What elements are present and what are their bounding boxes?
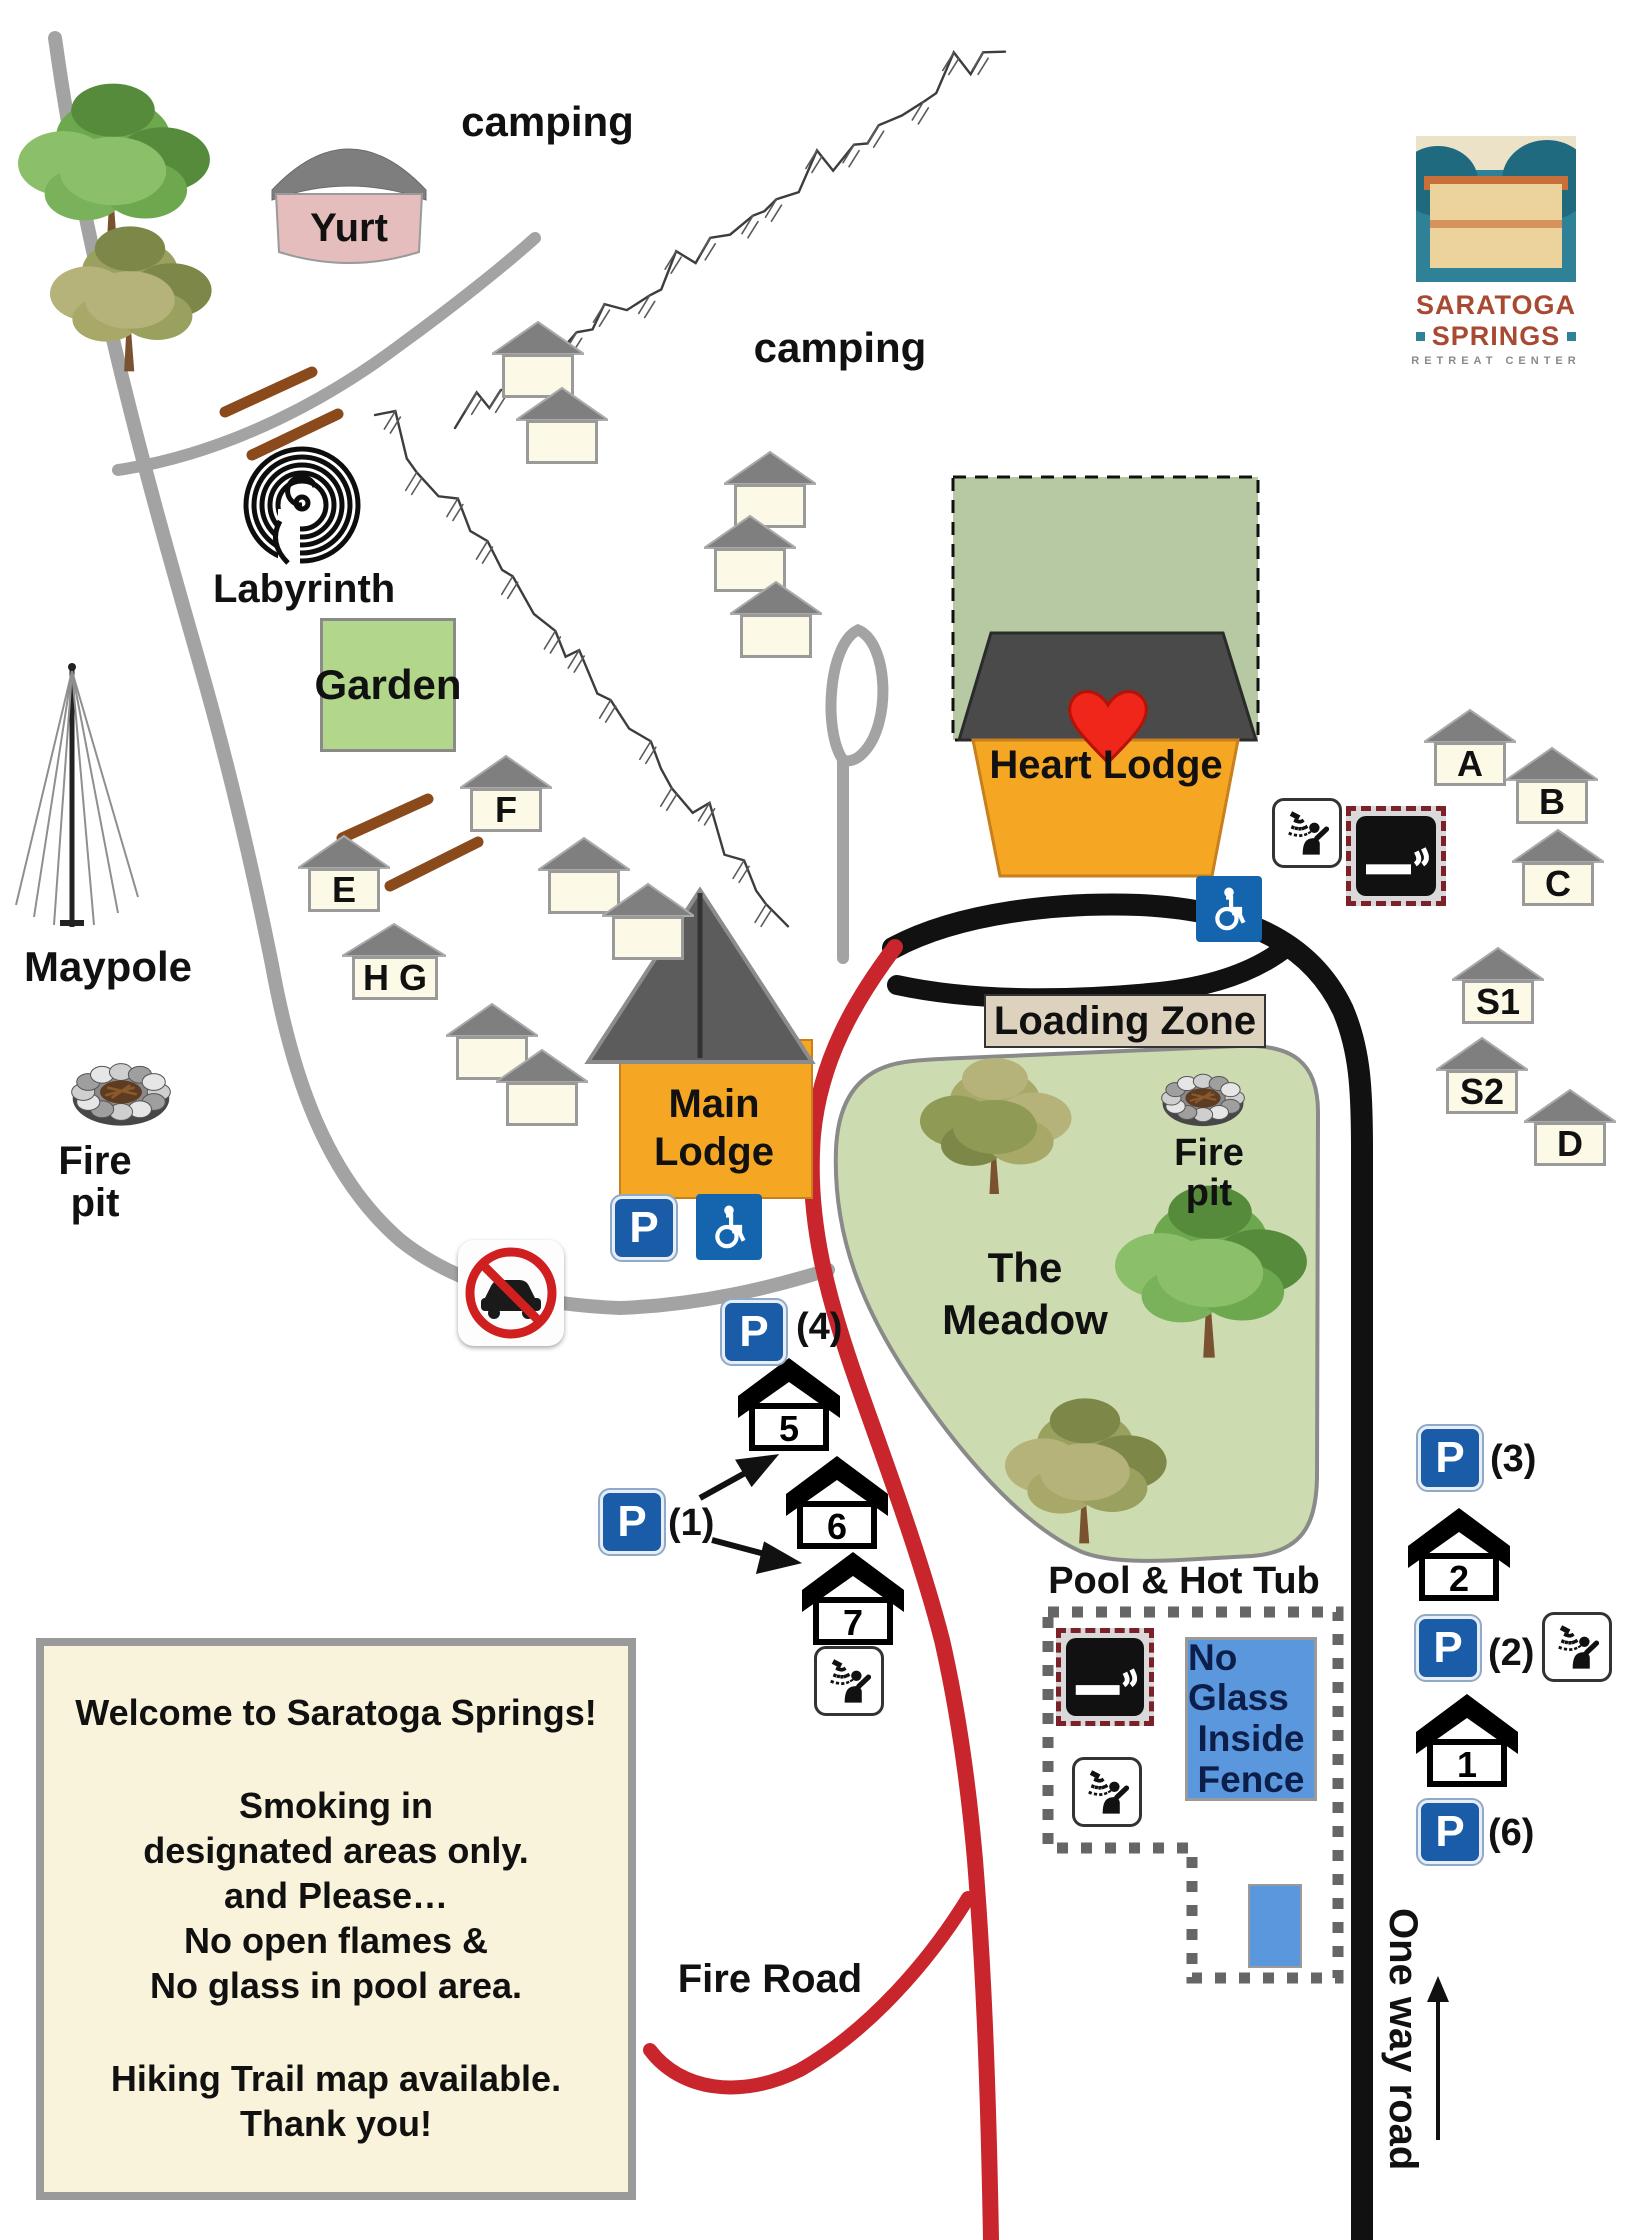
logo-line2: SPRINGS <box>1432 321 1561 352</box>
garden-label: Garden <box>314 661 461 709</box>
labyrinth-label: Labyrinth <box>213 568 393 610</box>
parking-letter: P <box>739 1307 768 1357</box>
logo-line1: SARATOGA <box>1408 290 1584 321</box>
main-lodge-line2: Lodge <box>624 1128 804 1176</box>
parking-icon: P <box>1416 1616 1480 1680</box>
fire-road-label: Fire Road <box>655 1958 885 2000</box>
parking-letter: P <box>1435 1807 1464 1857</box>
heart-lodge-label: Heart Lodge <box>980 744 1232 786</box>
parking-icon: P <box>1418 1426 1482 1490</box>
cabin-S2-label: S2 <box>1446 1070 1518 1114</box>
cabin-C-label: C <box>1522 862 1594 906</box>
yurt-label: Yurt <box>268 206 430 251</box>
garden-plot: Garden <box>320 618 456 752</box>
site-map: camping camping Yurt Labyrinth Garden <box>0 0 1648 2240</box>
no-glass-line1: No Glass <box>1188 1638 1314 1719</box>
cabin-D-label: D <box>1534 1122 1606 1166</box>
cabin-2: 2 <box>1406 1502 1512 1602</box>
meadow-label: The Meadow <box>925 1242 1125 1346</box>
welcome-line6: No glass in pool area. <box>44 1963 628 2008</box>
cabin-7-label: 7 <box>816 1604 890 1642</box>
parking-count-1: (1) <box>668 1502 714 1545</box>
cabin-E: E <box>298 832 390 914</box>
cabin-F-label: F <box>470 788 542 832</box>
welcome-line5: No open flames & <box>44 1918 628 1963</box>
parking-icon: P <box>612 1196 676 1260</box>
meadow-line2: Meadow <box>925 1294 1125 1346</box>
camping-label-upper: camping <box>455 100 640 144</box>
cabin-unlabeled <box>496 1046 588 1128</box>
smoking-area-icon <box>1056 1628 1154 1726</box>
shower-icon <box>814 1646 884 1716</box>
yurt-shape <box>268 128 430 280</box>
welcome-line7: Hiking Trail map available. <box>44 2056 628 2101</box>
cabin-unlabeled <box>516 384 608 466</box>
parking-count-4: (4) <box>796 1306 842 1349</box>
parking-icon: P <box>1418 1800 1482 1864</box>
pool-title: Pool & Hot Tub <box>1038 1562 1330 1602</box>
main-lodge-line1: Main <box>624 1080 804 1128</box>
one-way-arrow-icon <box>1427 1976 1449 2140</box>
logo-picture <box>1416 136 1576 282</box>
accessible-icon <box>1196 876 1262 942</box>
cabin-1-label: 1 <box>1430 1746 1504 1784</box>
cabin-6-label: 6 <box>800 1508 874 1546</box>
cabin-B-label: B <box>1516 780 1588 824</box>
yurt-building: Yurt <box>268 128 430 280</box>
cabin-7: 7 <box>800 1546 906 1646</box>
welcome-sign: Welcome to Saratoga Springs! Smoking in … <box>36 1638 636 2200</box>
cabin-5-label: 5 <box>752 1410 826 1448</box>
loading-zone-sign: Loading Zone <box>984 994 1266 1048</box>
shower-icon <box>1072 1757 1142 1827</box>
maypole-icon <box>10 655 195 940</box>
cabin-S1: S1 <box>1452 944 1544 1026</box>
maypole-label: Maypole <box>18 945 198 989</box>
labyrinth-icon <box>238 443 366 571</box>
cabin-F: F <box>460 752 552 834</box>
cabin-HG: H G <box>342 920 446 1002</box>
main-lodge-label: Main Lodge <box>624 1080 804 1176</box>
no-glass-line2: Inside <box>1198 1719 1305 1760</box>
fire-pit-west-label: Fire pit <box>30 1140 160 1224</box>
shower-icon <box>1272 798 1342 868</box>
cabin-1: 1 <box>1414 1688 1520 1788</box>
pool-no-glass-sign: No Glass Inside Fence <box>1185 1637 1317 1801</box>
no-glass-line3: Fence <box>1198 1760 1305 1801</box>
parking-count-3: (3) <box>1490 1438 1536 1481</box>
fire-pit-meadow-label: Fire pit <box>1149 1134 1269 1214</box>
meadow-line1: The <box>925 1242 1125 1294</box>
one-way-road-label: One way road <box>1382 1908 1424 2170</box>
logo-line3: RETREAT CENTER <box>1408 355 1584 367</box>
welcome-line2: Smoking in <box>44 1783 628 1828</box>
loading-zone-label: Loading Zone <box>994 999 1256 1044</box>
parking-letter: P <box>1433 1623 1462 1673</box>
welcome-line1: Welcome to Saratoga Springs! <box>44 1690 628 1735</box>
parking-icon: P <box>722 1300 786 1364</box>
cabin-C: C <box>1512 826 1604 908</box>
parking-count-2: (2) <box>1488 1632 1534 1675</box>
parking-icon: P <box>600 1490 664 1554</box>
saratoga-springs-logo: SARATOGA SPRINGS RETREAT CENTER <box>1408 136 1584 367</box>
no-cars-icon <box>458 1240 564 1346</box>
cabin-5: 5 <box>736 1352 842 1452</box>
parking-count-6: (6) <box>1488 1812 1534 1855</box>
parking-letter: P <box>617 1497 646 1547</box>
camping-label-lower: camping <box>745 326 935 370</box>
accessible-icon <box>696 1194 762 1260</box>
welcome-line3: designated areas only. <box>44 1828 628 1873</box>
cabin-6: 6 <box>784 1450 890 1550</box>
cabin-S2: S2 <box>1436 1034 1528 1116</box>
cabin-A: A <box>1424 706 1516 788</box>
parking-letter: P <box>1435 1433 1464 1483</box>
smoking-area-icon <box>1346 806 1446 906</box>
cabin-D: D <box>1524 1086 1616 1168</box>
shower-icon <box>1542 1612 1612 1682</box>
cabin-unlabeled <box>602 880 694 962</box>
cabin-B: B <box>1506 744 1598 826</box>
cabin-2-label: 2 <box>1422 1560 1496 1598</box>
cabin-HG-label: H G <box>352 956 438 1000</box>
cabin-A-label: A <box>1434 742 1506 786</box>
cabin-E-label: E <box>308 868 380 912</box>
welcome-line4: and Please… <box>44 1873 628 1918</box>
cabin-unlabeled <box>730 578 822 660</box>
parking-letter: P <box>629 1203 658 1253</box>
hot-tub <box>1248 1884 1302 1968</box>
welcome-line8: Thank you! <box>44 2101 628 2146</box>
cabin-S1-label: S1 <box>1462 980 1534 1024</box>
